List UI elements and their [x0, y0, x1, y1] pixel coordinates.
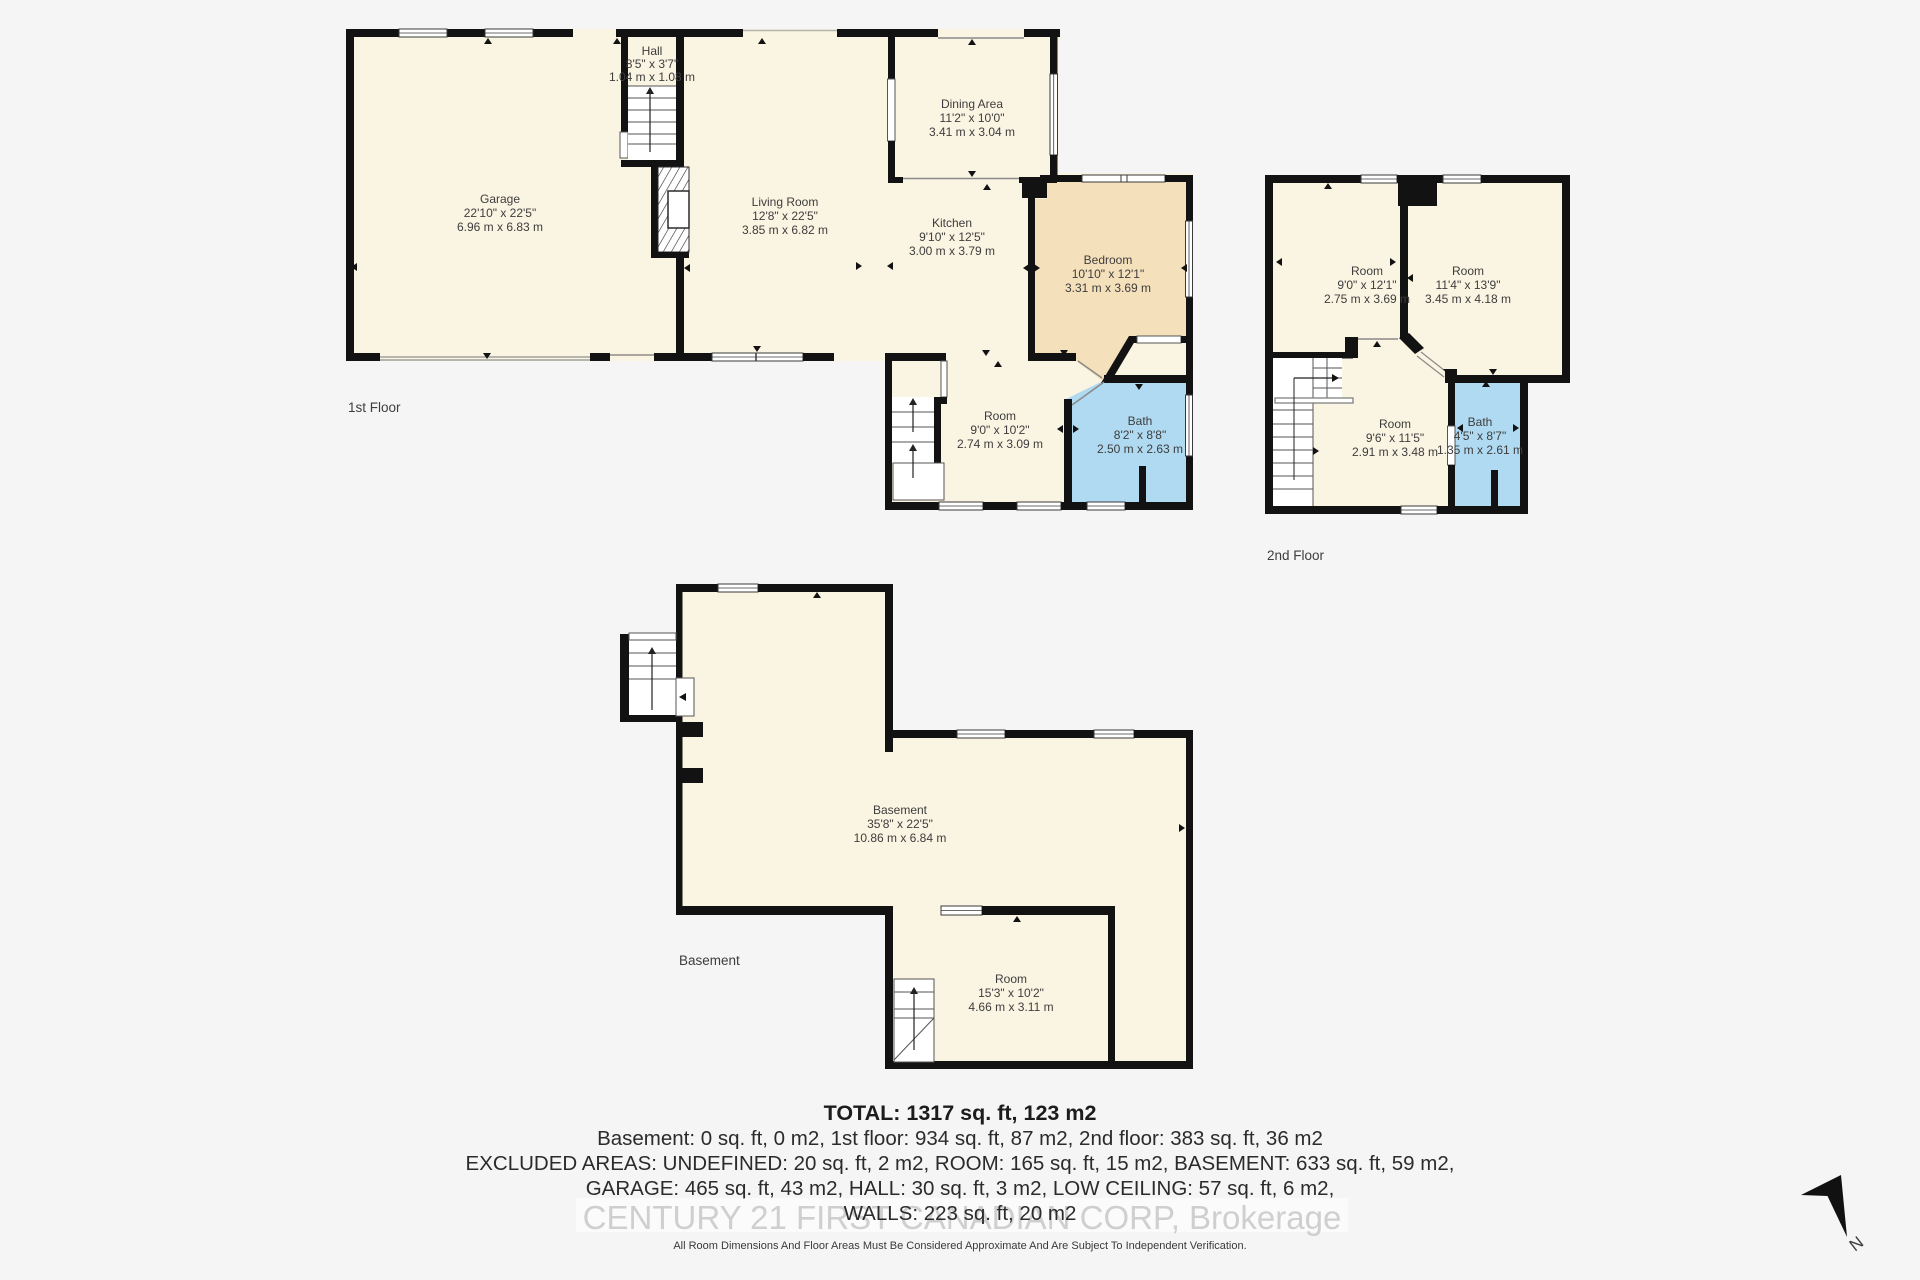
svg-text:2.50 m x 2.63 m: 2.50 m x 2.63 m	[1097, 442, 1183, 456]
svg-text:GARAGE: 465 sq. ft, 43 m2, HAL: GARAGE: 465 sq. ft, 43 m2, HALL: 30 sq. …	[586, 1177, 1335, 1200]
svg-text:Room: Room	[1452, 264, 1484, 278]
svg-text:Room: Room	[1351, 264, 1383, 278]
svg-text:Basement: Basement	[679, 953, 740, 968]
svg-text:11'4" x 13'9": 11'4" x 13'9"	[1436, 278, 1501, 292]
svg-text:6.96 m x 6.83 m: 6.96 m x 6.83 m	[457, 220, 543, 234]
svg-text:11'2" x 10'0": 11'2" x 10'0"	[940, 111, 1005, 125]
svg-text:TOTAL: 1317 sq. ft, 123 m2: TOTAL: 1317 sq. ft, 123 m2	[824, 1101, 1097, 1125]
svg-text:Basement: 0 sq. ft, 0 m2, 1st: Basement: 0 sq. ft, 0 m2, 1st floor: 934…	[597, 1127, 1323, 1150]
svg-text:1.04 m x 1.08 m: 1.04 m x 1.08 m	[609, 70, 695, 84]
svg-text:35'8" x 22'5": 35'8" x 22'5"	[867, 817, 933, 831]
svg-text:10.86 m x 6.84 m: 10.86 m x 6.84 m	[854, 831, 947, 845]
svg-text:9'10" x 12'5": 9'10" x 12'5"	[919, 230, 985, 244]
svg-text:8'2" x 8'8": 8'2" x 8'8"	[1114, 428, 1166, 442]
svg-text:15'3" x 10'2": 15'3" x 10'2"	[978, 986, 1044, 1000]
svg-text:2.75 m x 3.69 m: 2.75 m x 3.69 m	[1324, 292, 1410, 306]
svg-text:Living Room: Living Room	[752, 195, 819, 209]
svg-text:Basement: Basement	[873, 803, 928, 817]
svg-text:3.85 m x 6.82 m: 3.85 m x 6.82 m	[742, 223, 828, 237]
svg-text:Kitchen: Kitchen	[932, 216, 972, 230]
svg-text:1st Floor: 1st Floor	[348, 400, 401, 415]
svg-text:4'5" x 8'7": 4'5" x 8'7"	[1454, 429, 1506, 443]
svg-text:22'10" x 22'5": 22'10" x 22'5"	[464, 206, 537, 220]
svg-text:Bath: Bath	[1468, 415, 1493, 429]
svg-text:8'5" x 3'7": 8'5" x 3'7"	[626, 57, 678, 71]
svg-text:9'0" x 12'1": 9'0" x 12'1"	[1337, 278, 1396, 292]
svg-text:Room: Room	[984, 409, 1016, 423]
svg-text:4.66 m x 3.11 m: 4.66 m x 3.11 m	[968, 1000, 1053, 1014]
svg-text:Garage: Garage	[480, 192, 520, 206]
svg-text:3.00 m x 3.79 m: 3.00 m x 3.79 m	[909, 244, 995, 258]
svg-text:3.41 m x 3.04 m: 3.41 m x 3.04 m	[929, 125, 1015, 139]
svg-text:WALLS: 223 sq. ft, 20 m2: WALLS: 223 sq. ft, 20 m2	[844, 1202, 1077, 1225]
svg-text:9'0" x 10'2": 9'0" x 10'2"	[970, 423, 1029, 437]
svg-text:Bedroom: Bedroom	[1084, 253, 1133, 267]
svg-text:Bath: Bath	[1128, 414, 1153, 428]
svg-text:Dining Area: Dining Area	[941, 97, 1003, 111]
svg-text:EXCLUDED AREAS: UNDEFINED: 20: EXCLUDED AREAS: UNDEFINED: 20 sq. ft, 2 …	[466, 1152, 1455, 1175]
svg-text:2nd Floor: 2nd Floor	[1267, 548, 1325, 563]
svg-text:2.91 m x 3.48 m: 2.91 m x 3.48 m	[1352, 445, 1438, 459]
svg-text:3.31 m x 3.69 m: 3.31 m x 3.69 m	[1065, 281, 1151, 295]
svg-text:1.35 m x 2.61 m: 1.35 m x 2.61 m	[1437, 443, 1523, 457]
svg-text:12'8" x 22'5": 12'8" x 22'5"	[752, 209, 818, 223]
svg-text:Room: Room	[1379, 417, 1411, 431]
svg-text:3.45 m x 4.18 m: 3.45 m x 4.18 m	[1425, 292, 1511, 306]
svg-text:All Room Dimensions And Floor: All Room Dimensions And Floor Areas Must…	[673, 1240, 1246, 1252]
svg-text:9'6" x 11'5": 9'6" x 11'5"	[1366, 431, 1424, 445]
svg-text:10'10" x 12'1": 10'10" x 12'1"	[1072, 267, 1145, 281]
svg-text:2.74 m x 3.09 m: 2.74 m x 3.09 m	[957, 437, 1043, 451]
svg-text:Room: Room	[995, 972, 1027, 986]
svg-text:Hall: Hall	[642, 44, 663, 58]
